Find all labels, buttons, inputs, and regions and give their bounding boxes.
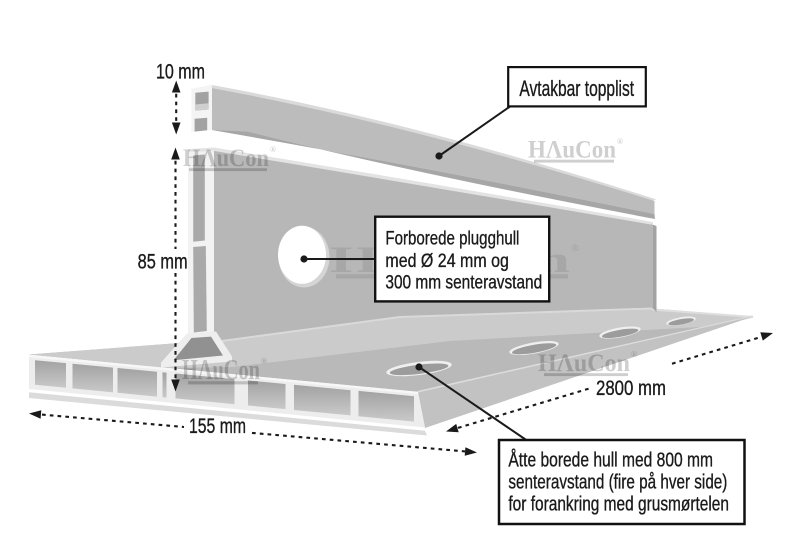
svg-text:®: ® xyxy=(617,137,623,146)
svg-text:HΛuCon: HΛuCon xyxy=(528,137,616,164)
svg-text:med Ø 24 mm og: med Ø 24 mm og xyxy=(385,250,509,272)
svg-text:®: ® xyxy=(571,243,579,255)
svg-text:HΛuCon: HΛuCon xyxy=(538,350,630,377)
svg-text:300 mm senteravstand: 300 mm senteravstand xyxy=(385,271,542,293)
svg-text:Forborede plugghull: Forborede plugghull xyxy=(385,227,519,249)
svg-text:for forankring med grusmørtele: for forankring med grusmørtelen xyxy=(508,494,729,516)
svg-text:®: ® xyxy=(631,350,637,359)
svg-text:155 mm: 155 mm xyxy=(189,415,246,438)
svg-text:85 mm: 85 mm xyxy=(138,251,188,274)
svg-text:Åtte borede hull med 800 mm: Åtte borede hull med 800 mm xyxy=(508,449,713,472)
svg-text:10 mm: 10 mm xyxy=(156,61,205,84)
svg-text:HΛuCon: HΛuCon xyxy=(183,145,269,172)
svg-text:Avtakbar topplist: Avtakbar topplist xyxy=(519,76,634,101)
svg-text:senteravstand (fire på hver si: senteravstand (fire på hver side) xyxy=(508,472,727,494)
svg-text:®: ® xyxy=(261,357,267,366)
svg-text:2800 mm: 2800 mm xyxy=(596,377,666,400)
svg-text:®: ® xyxy=(270,145,276,154)
